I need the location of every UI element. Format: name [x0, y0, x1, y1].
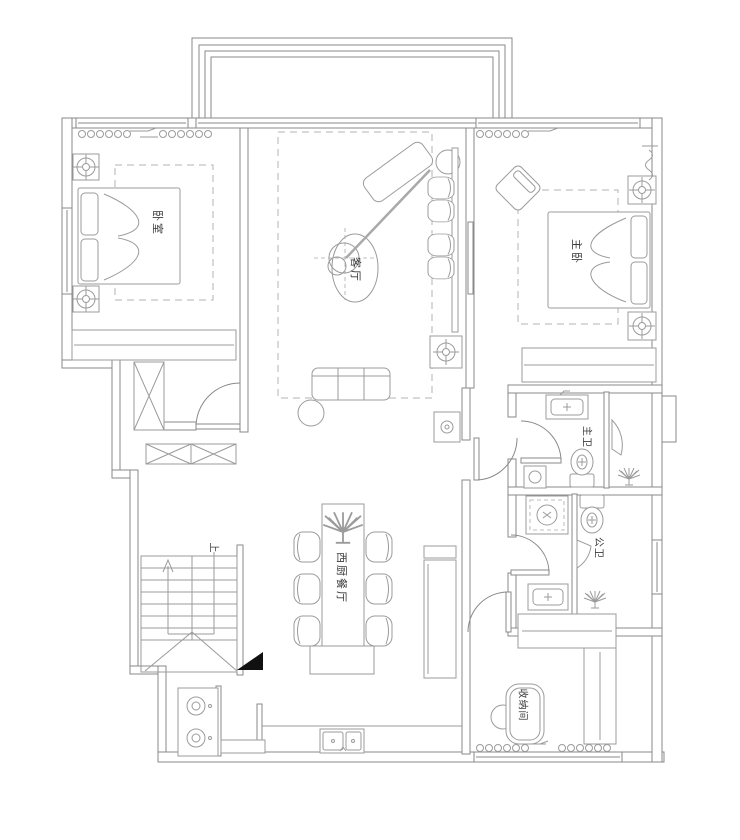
tall-cabinet-icon — [134, 362, 164, 430]
door-panel-detail — [468, 222, 473, 294]
window-bedroom-top — [76, 118, 188, 128]
plant-icon — [618, 468, 640, 485]
floor-plan-drawing — [0, 0, 740, 840]
ceiling-lamp-box-icon — [430, 336, 462, 442]
window-balcony — [196, 118, 508, 128]
storage-furniture — [477, 614, 617, 752]
living-furniture — [298, 140, 462, 442]
ceiling-light-icon — [314, 228, 378, 302]
storage-door-icon — [468, 592, 511, 632]
stairs-up-arrow-icon — [163, 552, 214, 634]
plant-icon — [584, 591, 606, 608]
armchair-icon — [494, 164, 542, 212]
toilet-icon — [580, 495, 604, 533]
washing-machine-icon — [526, 496, 568, 534]
stove-icon — [178, 688, 218, 756]
island-cabinet-icon — [310, 646, 374, 674]
bed-icon — [78, 188, 180, 284]
bar-chairs-icon — [428, 177, 454, 279]
room-label-living: 客厅 — [348, 257, 364, 283]
floor-drain-icon — [524, 466, 546, 488]
balcony-outline — [192, 38, 512, 118]
closet-right-icon — [584, 648, 616, 744]
window-bedroom-left — [62, 208, 72, 294]
window-storage-bottom — [474, 752, 622, 762]
room-label-storage: 收纳间 — [517, 689, 532, 722]
window-master-top — [476, 118, 640, 128]
closet-top-icon — [518, 614, 616, 648]
vanity-sink-icon — [546, 391, 588, 419]
bedroom-furniture — [72, 128, 236, 464]
kitchen-sink-icon — [320, 729, 364, 753]
staircase — [141, 552, 263, 672]
master-bed-icon — [548, 212, 650, 308]
hallway-cabinet-icon — [146, 444, 236, 464]
shower-head-icon — [577, 540, 591, 568]
master-furniture — [468, 128, 658, 382]
window-bath-right — [652, 540, 662, 594]
shower-door-icon — [612, 420, 622, 455]
wardrobe-icon — [72, 330, 236, 360]
curtain-icon — [79, 128, 212, 138]
toilet-icon — [570, 449, 594, 487]
stairs-outline — [141, 556, 237, 672]
public-bath-door-icon — [511, 535, 549, 575]
stairs-break-line — [145, 632, 237, 671]
master-bath-door-icon — [521, 421, 561, 463]
floor-plan: 卧室 客厅 主卧 主卫 公卫 西厨餐厅 收纳间 上 — [0, 0, 740, 840]
fridge-icon — [424, 546, 456, 678]
master-curtain-icon — [477, 128, 659, 180]
room-label-dining: 西厨餐厅 — [334, 552, 350, 604]
room-label-public-bath: 公卫 — [593, 537, 608, 559]
dining-furniture — [294, 504, 456, 678]
room-label-master: 主卧 — [569, 239, 585, 265]
master-wardrobe-icon — [522, 348, 656, 382]
room-label-master-bath: 主卫 — [581, 426, 596, 448]
sofa-icon — [298, 368, 390, 426]
low-cabinet-icon — [221, 740, 265, 753]
room-label-bedroom: 卧室 — [150, 210, 166, 236]
stairs-up-label: 上 — [208, 543, 223, 554]
bedroom-door-icon — [196, 383, 240, 429]
wash-basin-icon — [528, 584, 568, 610]
